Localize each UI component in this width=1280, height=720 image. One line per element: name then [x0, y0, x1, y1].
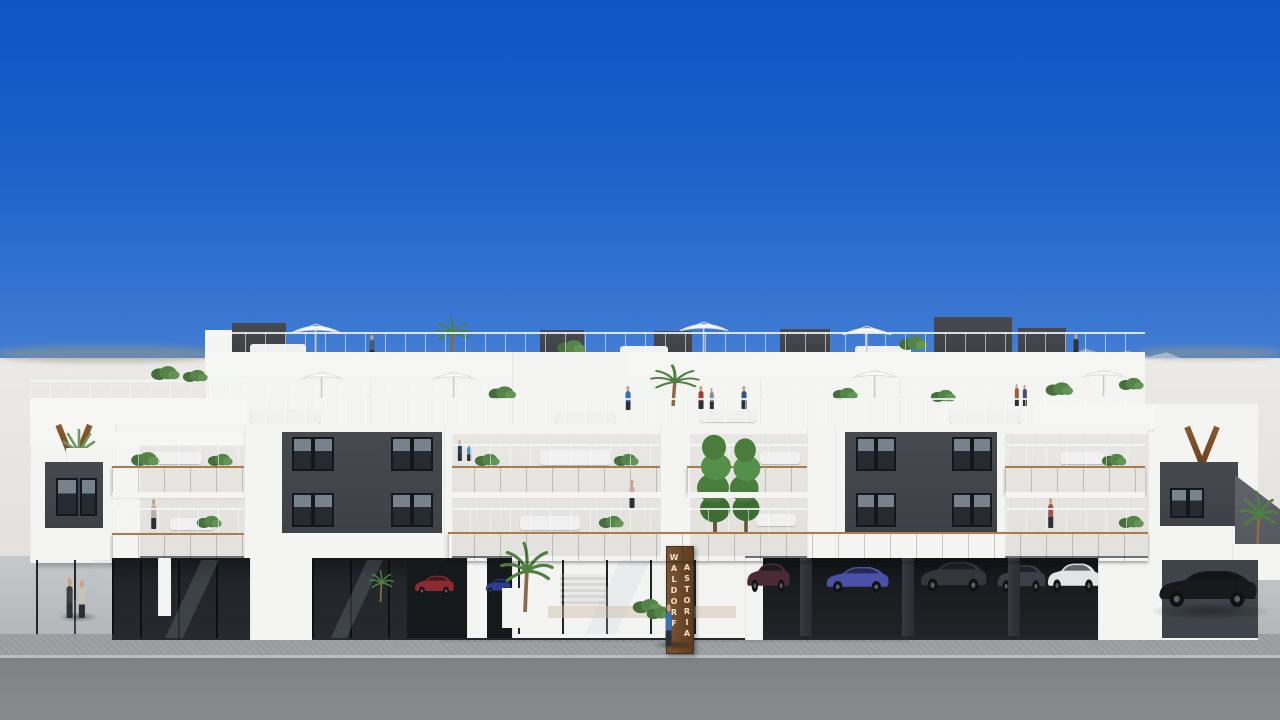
window — [952, 493, 972, 527]
car-graphite-hatchback — [994, 560, 1048, 596]
right-wing-parasol — [1078, 364, 1130, 398]
wood-balcony-fascia — [112, 466, 247, 495]
car-body — [1159, 571, 1256, 607]
car-white-suv — [1044, 558, 1102, 596]
balcony-glass-railing — [118, 508, 244, 536]
window — [80, 478, 97, 516]
window — [412, 437, 433, 471]
window — [856, 437, 876, 471]
carport-pillar — [902, 558, 914, 636]
floor-slab-edge — [687, 492, 810, 498]
car-dark-grey-suv — [916, 556, 990, 596]
window — [972, 437, 992, 471]
pedestrian-at-entrance — [663, 604, 674, 646]
distant-treeline-left — [0, 346, 215, 362]
window — [972, 493, 992, 527]
lobby-stair — [560, 574, 606, 606]
window — [292, 493, 313, 527]
car-body — [747, 564, 789, 593]
wood-v-brace — [1172, 424, 1232, 464]
carport-pillar — [1008, 558, 1020, 636]
window — [313, 493, 334, 527]
window — [412, 493, 433, 527]
terrace-parasol — [296, 366, 348, 400]
window — [856, 493, 876, 527]
window — [56, 478, 78, 516]
wood-canopy-fascia — [448, 532, 1148, 561]
white-pier — [244, 428, 252, 564]
pedestrian — [77, 580, 87, 618]
white-column — [467, 558, 487, 638]
window — [1170, 488, 1188, 518]
storefront-glass — [36, 560, 138, 634]
car-black-coupe — [1152, 564, 1262, 612]
carport-opening — [407, 558, 467, 638]
window — [952, 437, 972, 471]
floor-slab-edge — [1005, 492, 1145, 498]
car-body — [998, 565, 1046, 592]
pedestrian — [64, 578, 75, 618]
window — [391, 493, 412, 527]
car-body — [827, 567, 889, 593]
storefront-glass — [140, 560, 250, 638]
wood-balcony-fascia — [112, 533, 247, 561]
left-wing-bush — [182, 368, 208, 382]
wood-balcony-fascia — [1005, 466, 1145, 494]
car-maroon-suv — [744, 558, 792, 596]
white-pier-wide — [250, 558, 312, 640]
asphalt-road — [0, 658, 1280, 720]
window — [1188, 488, 1204, 518]
person-shadow — [652, 640, 696, 650]
car-body — [921, 562, 986, 592]
car-red — [412, 572, 456, 598]
left-wing-bush — [150, 364, 180, 380]
window — [391, 437, 412, 471]
terrace-parasol — [428, 366, 480, 400]
window — [876, 493, 896, 527]
window — [292, 437, 313, 471]
terrace-parasol — [846, 364, 904, 400]
architectural-render-scene: WALDORF ASTORIA — [0, 0, 1280, 720]
balcony-cushions — [760, 452, 800, 464]
floor-slab-edge — [448, 492, 663, 498]
carport-pillar — [800, 558, 812, 636]
window — [313, 437, 334, 471]
white-column — [158, 558, 171, 616]
car-body — [1048, 564, 1099, 593]
terrace-bush — [1045, 380, 1073, 396]
window — [876, 437, 896, 471]
street-palm — [1238, 484, 1278, 552]
floor-slab-edge — [112, 492, 247, 498]
car-body — [415, 576, 454, 596]
car-blue-violet-sedan — [822, 562, 892, 596]
potted-plant — [368, 566, 394, 602]
